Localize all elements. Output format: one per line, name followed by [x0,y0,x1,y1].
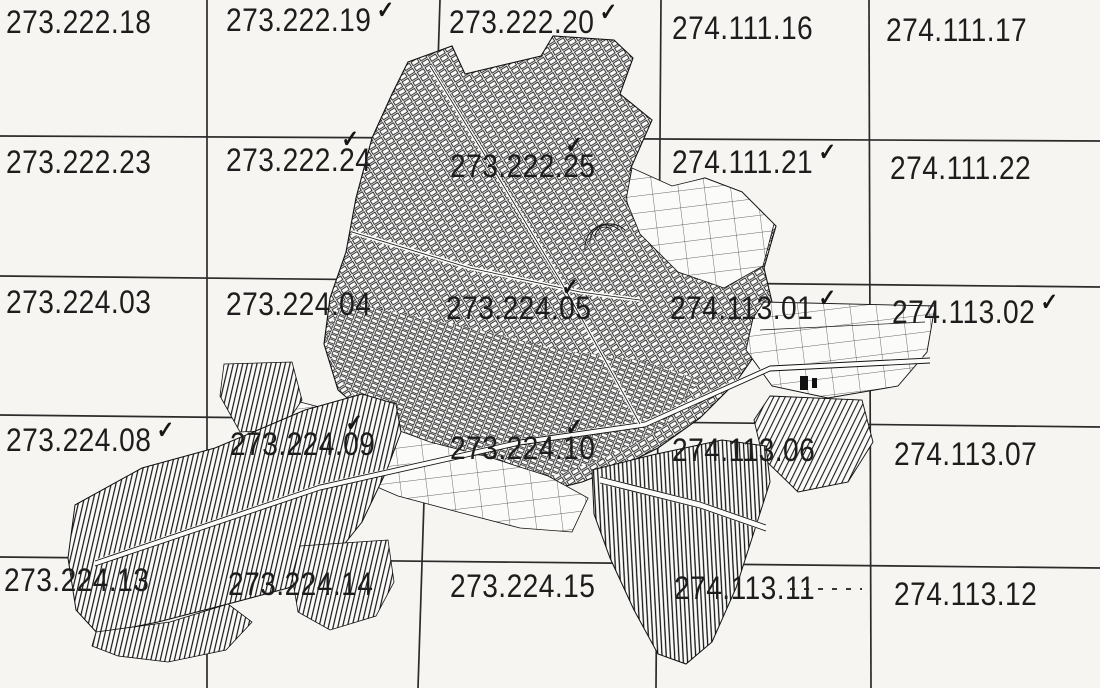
sheet-label: 273.222.25✓ [450,150,584,182]
checkmark-icon: ✓ [1041,291,1059,315]
sheet-label: 273.224.13 [4,564,155,596]
sheet-number: 274.111.21 [672,144,813,180]
sheet-label: 274.111.22 [890,152,1036,184]
sheet-number: 273.222.20 [449,4,594,40]
sheet-label: 274.113.01✓ [670,292,837,324]
sheet-number: 273.224.15 [450,568,595,604]
sheet-label: 274.113.11 [674,572,820,604]
sheet-label: 273.222.24✓ [226,144,360,176]
sheet-label: 274.113.07 [894,438,1043,470]
sheet-number: 273.224.13 [4,562,149,598]
sheet-number: 274.111.17 [886,12,1027,48]
sheet-number: 273.222.23 [6,144,151,180]
sheet-label: 274.111.16 [672,12,818,44]
sheet-label: 274.111.17 [886,14,1032,46]
sheet-label: 273.222.18 [6,6,157,38]
sheet-label: 274.111.21✓ [672,146,837,178]
checkmark-icon: ✓ [345,412,363,436]
sheet-label: 273.224.10✓ [450,432,584,464]
map-sheet-index-page: 273.222.18 273.222.19✓ 273.222.20✓ 274.1… [0,0,1100,688]
checkmark-icon: ✓ [819,287,837,311]
sheet-number: 273.224.04 [226,286,371,322]
checkmark-icon: ✓ [341,128,359,152]
sheet-label: 273.224.04 [226,288,377,320]
map-south-lobe [592,440,770,664]
sheet-number: 273.222.19 [226,2,371,38]
sheet-number: 273.224.14 [228,566,373,602]
sheet-label: 273.224.14 [228,568,379,600]
sheet-label: 273.224.08✓ [6,424,175,456]
checkmark-icon: ✓ [565,416,583,440]
sheet-number: 274.113.06 [672,432,815,468]
sheet-label: 273.224.03 [6,286,157,318]
sheet-label: 273.224.09✓ [230,428,364,460]
checkmark-icon: ✓ [377,0,395,23]
sheet-number: 273.222.18 [6,4,151,40]
sheet-number: 273.224.03 [6,284,151,320]
sheet-number: 274.113.12 [894,576,1037,612]
sheet-number: 274.113.07 [894,436,1037,472]
sheet-number: 274.113.02 [892,294,1035,330]
sheet-number: 274.111.16 [672,10,813,46]
sheet-label: 274.113.06 [672,434,821,466]
sheet-label: 273.224.15 [450,570,601,602]
sheet-label: 273.222.20✓ [449,6,618,38]
sheet-label: 273.224.05✓ [446,292,580,324]
sheet-number: 274.111.22 [890,150,1031,186]
sheet-label: 273.222.19✓ [226,4,395,36]
checkmark-icon: ✓ [157,419,175,443]
sheet-label: 273.222.23 [6,146,157,178]
checkmark-icon: ✓ [818,141,836,165]
sheet-label: 274.113.12 [894,578,1043,610]
checkmark-icon: ✓ [600,1,618,25]
sheet-number: 274.113.11 [674,570,815,606]
sheet-number: 274.113.01 [670,290,813,326]
checkmark-icon: ✓ [565,134,583,158]
checkmark-icon: ✓ [561,276,579,300]
map-strip-fields-fan [68,362,401,662]
sheet-number: 273.224.08 [6,422,151,458]
sheet-label: 274.113.02✓ [892,296,1059,328]
